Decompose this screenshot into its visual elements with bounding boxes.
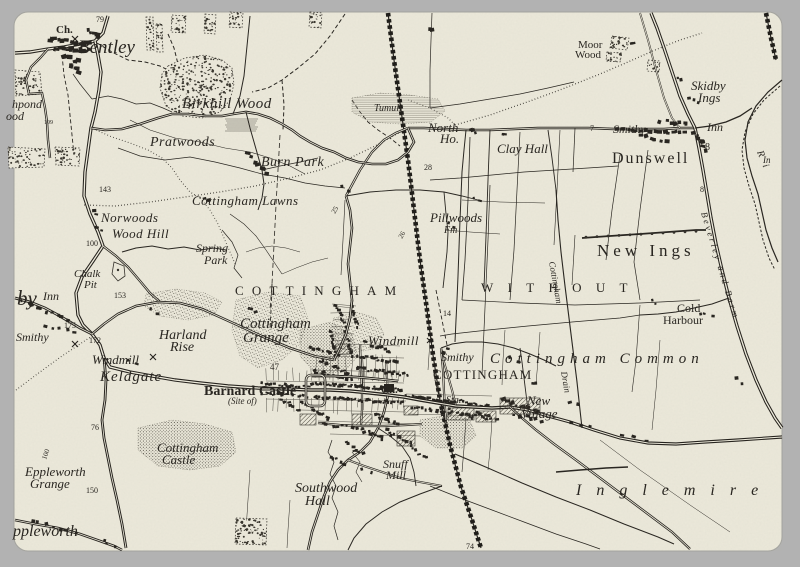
svg-text:Birkhill Wood: Birkhill Wood [182, 96, 272, 112]
svg-text:Grange: Grange [30, 476, 70, 491]
svg-text:Tumuli: Tumuli [374, 103, 402, 114]
svg-text:Harbour: Harbour [663, 313, 703, 327]
svg-text:Castle: Castle [162, 452, 195, 467]
svg-text:Grange: Grange [243, 330, 289, 346]
svg-text:Pit: Pit [83, 279, 98, 291]
svg-text:Fm: Fm [443, 225, 457, 236]
svg-text:In: In [762, 155, 771, 165]
svg-text:150: 150 [86, 486, 98, 495]
svg-text:76: 76 [91, 423, 99, 432]
svg-text:Smithy: Smithy [613, 122, 646, 136]
svg-text:by: by [17, 286, 38, 310]
svg-text:ppleworth: ppleworth [12, 523, 78, 540]
svg-text:7: 7 [590, 124, 594, 133]
svg-text:Inn: Inn [706, 120, 723, 134]
svg-text:Rise: Rise [169, 340, 194, 355]
svg-text:Sta.: Sta. [446, 395, 461, 406]
svg-text:28: 28 [424, 163, 432, 172]
svg-text:Burn Park: Burn Park [261, 155, 325, 170]
svg-text:Wood Hill: Wood Hill [112, 226, 169, 241]
svg-text:Bentley: Bentley [78, 37, 136, 58]
svg-text:Inn: Inn [42, 289, 59, 303]
svg-text:153: 153 [114, 291, 126, 300]
svg-text:Cottingham Common: Cottingham Common [490, 351, 704, 367]
svg-text:Hall: Hall [304, 494, 330, 509]
svg-text:Ch.: Ch. [381, 384, 398, 396]
svg-text:Norwoods: Norwoods [100, 210, 158, 225]
svg-text:Ho.: Ho. [439, 131, 459, 146]
svg-text:109: 109 [44, 120, 53, 126]
svg-text:New Ings: New Ings [597, 241, 695, 260]
svg-text:Keldgate: Keldgate [99, 369, 162, 385]
svg-text:Ch.: Ch. [56, 24, 73, 36]
svg-text:Smithy: Smithy [16, 330, 49, 344]
svg-text:Cottingham Lawns: Cottingham Lawns [192, 193, 299, 208]
svg-text:COTTINGHAM: COTTINGHAM [235, 283, 404, 298]
svg-text:8: 8 [705, 142, 710, 153]
svg-text:I n g l e m i r e: I n g l e m i r e [575, 482, 764, 499]
svg-text:143: 143 [99, 185, 111, 194]
svg-text:74: 74 [466, 542, 474, 551]
svg-text:Wood: Wood [575, 49, 602, 61]
svg-text:COTTINGHAM: COTTINGHAM [433, 367, 532, 382]
svg-text:172: 172 [89, 336, 101, 345]
svg-text:8: 8 [700, 185, 704, 194]
svg-text:14: 14 [443, 309, 451, 318]
svg-text:Mill: Mill [385, 468, 407, 482]
svg-text:175: 175 [64, 321, 76, 330]
svg-text:Pillwoods: Pillwoods [429, 210, 482, 225]
svg-text:100: 100 [86, 239, 98, 248]
svg-text:(Site of): (Site of) [228, 396, 257, 406]
svg-text:Ings: Ings [697, 90, 720, 105]
svg-text:47: 47 [270, 362, 280, 372]
svg-text:Park: Park [203, 253, 228, 267]
svg-text:Windmill: Windmill [368, 333, 419, 348]
svg-text:ood: ood [6, 109, 25, 123]
svg-text:Pratwoods: Pratwoods [149, 135, 215, 150]
svg-text:Village: Village [521, 406, 558, 421]
svg-text:Clay Hall: Clay Hall [497, 141, 548, 156]
svg-text:79: 79 [96, 15, 104, 24]
svg-text:Smithy: Smithy [441, 350, 474, 364]
svg-text:Windmill: Windmill [92, 352, 139, 367]
svg-text:Dunswell: Dunswell [612, 150, 689, 167]
